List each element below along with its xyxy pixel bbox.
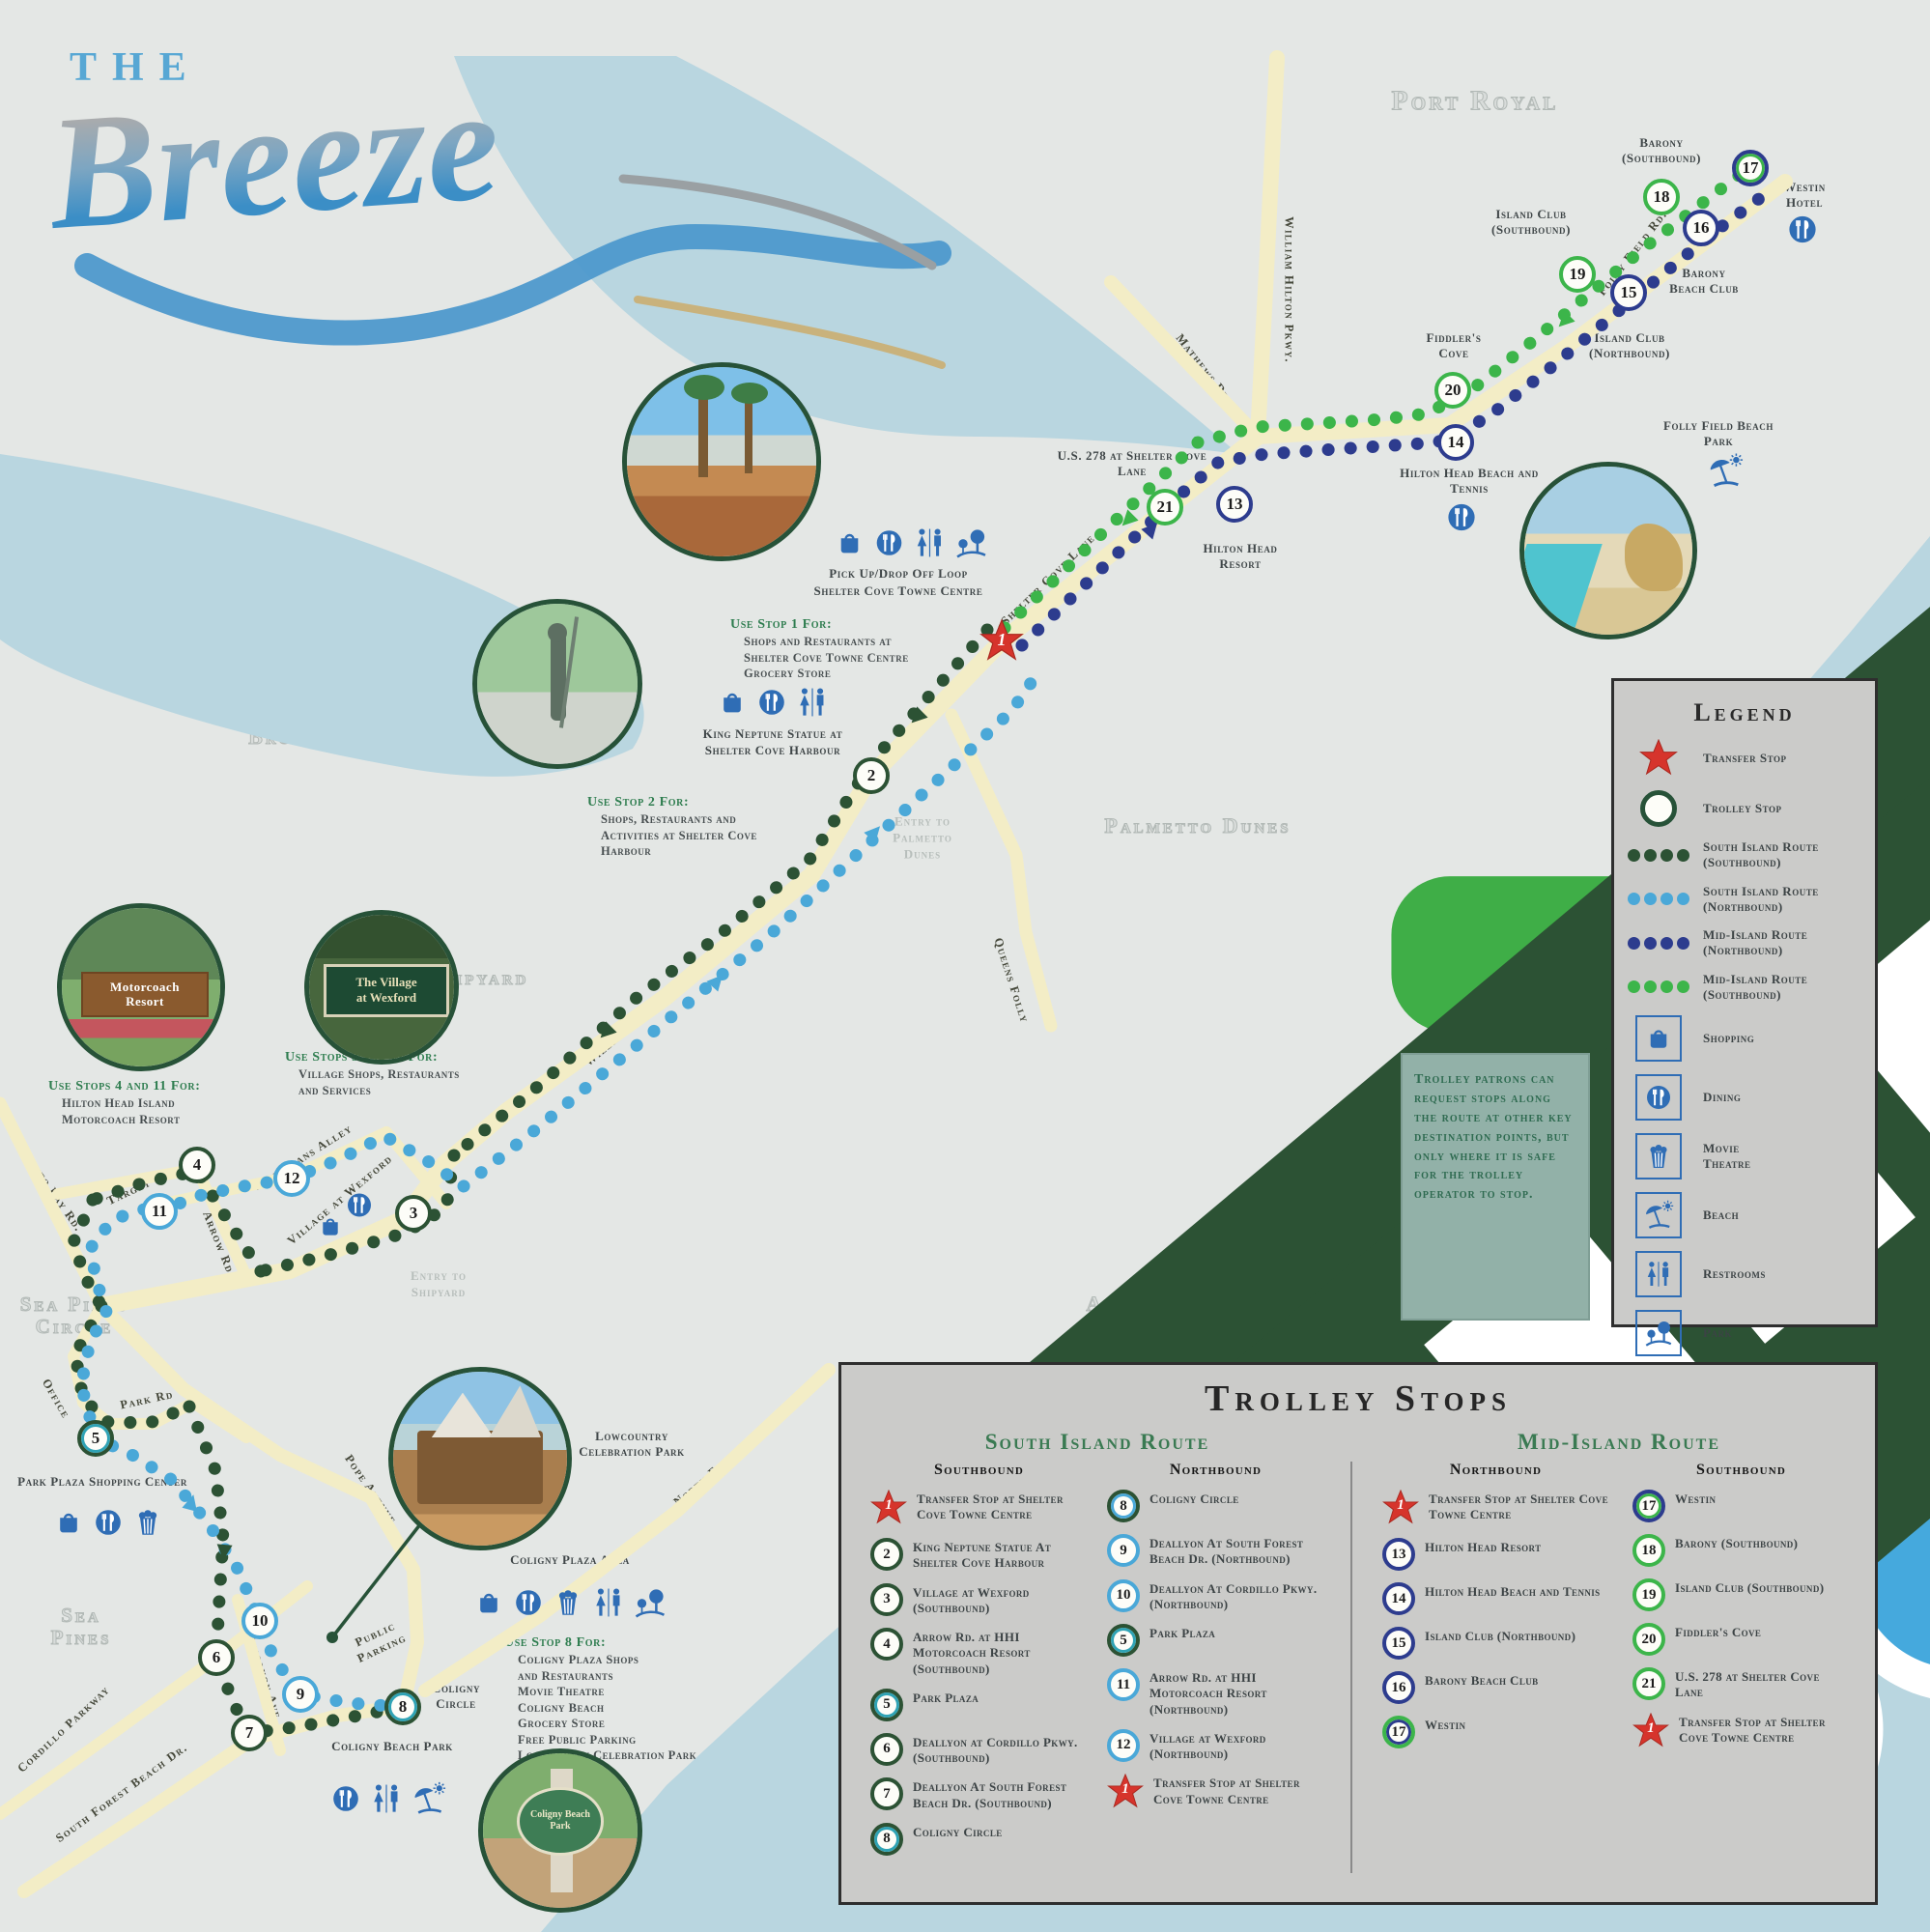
dining-icon — [874, 527, 905, 558]
dining-icon — [345, 1191, 374, 1225]
legend-beach: Beach — [1614, 1192, 1875, 1238]
stop-badge: 5 — [1107, 1624, 1140, 1657]
dining-icon — [330, 1783, 361, 1814]
legend-south-southbound: South Island Route (Southbound) — [1614, 839, 1875, 871]
map-stop-17: 17 — [1732, 150, 1769, 186]
map-stop-18: 18 — [1643, 179, 1680, 215]
table-divider — [1350, 1462, 1352, 1873]
map-stop-15: 15 — [1610, 274, 1647, 311]
transfer-star-icon: 1 — [1382, 1490, 1419, 1526]
mid-northbound-column: Northbound 1Transfer Stop at Shelter Cov… — [1382, 1463, 1609, 1761]
map-stop-21: 21 — [1147, 489, 1183, 526]
table-row: 19Island Club (Southbound) — [1632, 1578, 1850, 1611]
table-row: 13Hilton Head Resort — [1382, 1538, 1609, 1571]
stop-badge: 20 — [1632, 1623, 1665, 1656]
legend-mid-southbound: Mid-Island Route (Southbound) — [1614, 972, 1875, 1004]
dining-icon — [756, 687, 787, 718]
south-northbound-dots-icon — [1628, 893, 1689, 905]
map-stop-16: 16 — [1683, 210, 1719, 246]
village-at-wexford-sign-photo: The Village at Wexford — [304, 910, 459, 1065]
dining-icon — [1786, 213, 1819, 251]
table-row: 2King Neptune Statue At Shelter Cove Har… — [870, 1538, 1088, 1572]
legend-title: Legend — [1614, 700, 1875, 725]
table-row: 17Westin — [1382, 1716, 1609, 1748]
map-stop-13: 13 — [1216, 486, 1253, 523]
table-title: Trolley Stops — [841, 1380, 1875, 1417]
stop-badge: 10 — [1107, 1579, 1140, 1612]
mid-northbound-dots-icon — [1628, 937, 1689, 950]
mid-island-route-section: Mid-Island Route Northbound 1Transfer St… — [1382, 1431, 1856, 1761]
lowcountry-playground-photo — [388, 1367, 572, 1550]
title-breeze: Breeze — [43, 62, 504, 255]
legend-panel: Legend Transfer Stop Trolley Stop South … — [1611, 678, 1878, 1327]
stop-badge: 3 — [870, 1583, 903, 1616]
shelter-cove-amenities — [835, 526, 988, 559]
south-northbound-column: Northbound 8Coligny Circle 9Deallyon At … — [1107, 1463, 1324, 1867]
restrooms-icon — [914, 526, 947, 559]
shopping-icon — [317, 1213, 344, 1245]
breeze-trolley-map: THE Breeze Port Royal Broad Creek Broad … — [0, 0, 1930, 1932]
legend-south-northbound: South Island Route (Northbound) — [1614, 884, 1875, 916]
table-row: 1Transfer Stop at Shelter Cove Towne Cen… — [870, 1490, 1088, 1526]
table-row: 8Coligny Circle — [870, 1823, 1088, 1856]
beach-icon — [412, 1781, 446, 1816]
table-row: 21U.S. 278 at Shelter Cove Lane — [1632, 1667, 1850, 1701]
table-row: 12Village at Wexford (Northbound) — [1107, 1729, 1324, 1763]
stop-badge: 13 — [1382, 1538, 1415, 1571]
table-row: 10Deallyon At Cordillo Pkwy. (Northbound… — [1107, 1579, 1324, 1613]
stop-badge: 7 — [870, 1777, 903, 1810]
stop-badge: 6 — [870, 1733, 903, 1766]
legend-park: Park — [1614, 1310, 1875, 1356]
movie-icon — [132, 1507, 163, 1538]
dining-icon — [93, 1507, 124, 1538]
shopping-icon — [1644, 1024, 1673, 1053]
south-southbound-dots-icon — [1628, 849, 1689, 862]
south-southbound-column: Southbound 1Transfer Stop at Shelter Cov… — [870, 1463, 1088, 1867]
legend-transfer-stop: Transfer Stop — [1614, 739, 1875, 778]
table-row: 7Deallyon At South Forest Beach Dr. (Sou… — [870, 1777, 1088, 1811]
trolley-stop-icon — [1640, 790, 1677, 827]
map-stop-7: 7 — [231, 1715, 268, 1751]
table-row: 1Transfer Stop at Shelter Cove Towne Cen… — [1382, 1490, 1609, 1526]
shelter-cove-towne-centre-photo — [622, 362, 821, 561]
table-row: 5Park Plaza — [870, 1689, 1088, 1721]
map-stop-3: 3 — [395, 1195, 432, 1232]
transfer-star-icon: 1 — [1107, 1774, 1144, 1810]
dining-icon — [1445, 501, 1478, 539]
map-stop-5: 5 — [77, 1420, 114, 1457]
stop-badge: 17 — [1632, 1490, 1665, 1522]
table-row: 5Park Plaza — [1107, 1624, 1324, 1657]
south-island-route-section: South Island Route Southbound 1Transfer … — [870, 1431, 1324, 1867]
stop-badge: 4 — [870, 1628, 903, 1661]
dining-icon — [513, 1587, 544, 1618]
map-stop-14: 14 — [1437, 424, 1474, 461]
dining-icon — [1644, 1083, 1673, 1112]
map-stop-20: 20 — [1434, 372, 1471, 409]
map-stop-4: 4 — [179, 1147, 215, 1183]
legend-shopping: Shopping — [1614, 1015, 1875, 1062]
table-row: 16Barony Beach Club — [1382, 1671, 1609, 1704]
park-icon — [955, 526, 988, 559]
transfer-star-icon: 1 — [1632, 1713, 1669, 1749]
legend-trolley-stop: Trolley Stop — [1614, 790, 1875, 827]
legend-movie-theatre: Movie Theatre — [1614, 1133, 1875, 1179]
stop-badge: 16 — [1382, 1671, 1415, 1704]
shopping-icon — [717, 687, 748, 718]
park-icon — [634, 1586, 667, 1619]
trolley-request-note: Trolley patrons can request stops along … — [1401, 1053, 1590, 1321]
map-stop-12: 12 — [273, 1160, 310, 1197]
stop-badge: 5 — [870, 1689, 903, 1721]
map-stop-11: 11 — [141, 1193, 178, 1230]
trolley-stops-table: Trolley Stops South Island Route Southbo… — [838, 1362, 1878, 1905]
beach-icon — [1707, 453, 1744, 495]
movie-icon — [1644, 1142, 1673, 1171]
map-stop-2: 2 — [853, 757, 890, 794]
table-row: 4Arrow Rd. at HHI Motorcoach Resort (Sou… — [870, 1628, 1088, 1677]
stop-badge: 14 — [1382, 1582, 1415, 1615]
table-row: 9Deallyon At South Forest Beach Dr. (Nor… — [1107, 1534, 1324, 1568]
motorcoach-resort-sign-photo: Motorcoach Resort — [57, 903, 225, 1071]
shopping-icon — [53, 1507, 84, 1538]
table-row: 15Island Club (Northbound) — [1382, 1627, 1609, 1660]
legend-dining: Dining — [1614, 1074, 1875, 1121]
coligny-beach-amenities — [330, 1781, 446, 1816]
stop-badge: 9 — [1107, 1534, 1140, 1567]
table-row: 8Coligny Circle — [1107, 1490, 1324, 1522]
map-stop-19: 19 — [1559, 256, 1596, 293]
park-icon — [1644, 1319, 1673, 1348]
mid-southbound-column: Southbound 17Westin 18Barony (Southbound… — [1632, 1463, 1850, 1761]
table-row: 20Fiddler's Cove — [1632, 1623, 1850, 1656]
legend-mid-northbound: Mid-Island Route (Northbound) — [1614, 927, 1875, 959]
stop-badge: 18 — [1632, 1534, 1665, 1567]
coligny-plaza-amenities — [473, 1586, 667, 1619]
stop-badge: 2 — [870, 1538, 903, 1571]
king-neptune-statue-photo — [472, 599, 642, 769]
stop-badge: 8 — [870, 1823, 903, 1856]
king-neptune-amenities — [717, 686, 829, 719]
stop-badge: 17 — [1382, 1716, 1415, 1748]
restrooms-icon — [370, 1782, 403, 1815]
shopping-icon — [473, 1587, 504, 1618]
movie-icon — [553, 1587, 583, 1618]
stop-badge: 15 — [1382, 1627, 1415, 1660]
shopping-icon — [835, 527, 866, 558]
transfer-star-icon: 1 — [870, 1490, 907, 1526]
table-row: 11Arrow Rd. at HHI Motorcoach Resort (No… — [1107, 1668, 1324, 1718]
beach-icon — [1643, 1200, 1674, 1231]
table-row: 1Transfer Stop at Shelter Cove Towne Cen… — [1632, 1713, 1850, 1749]
table-row: 17Westin — [1632, 1490, 1850, 1522]
stop-badge: 21 — [1632, 1667, 1665, 1700]
stop-badge: 8 — [1107, 1490, 1140, 1522]
transfer-stop-1-map: 1 — [979, 619, 1024, 664]
mid-southbound-dots-icon — [1628, 980, 1689, 993]
stop-badge: 19 — [1632, 1578, 1665, 1611]
table-row: 3Village at Wexford (Southbound) — [870, 1583, 1088, 1617]
table-row: 6Deallyon at Cordillo Pkwy. (Southbound) — [870, 1733, 1088, 1767]
stop-badge: 12 — [1107, 1729, 1140, 1762]
restrooms-icon — [1644, 1260, 1673, 1289]
coligny-beach-park-sign-photo: Coligny Beach Park — [478, 1748, 642, 1913]
table-row: 14Hilton Head Beach and Tennis — [1382, 1582, 1609, 1615]
table-row: 1Transfer Stop at Shelter Cove Towne Cen… — [1107, 1774, 1324, 1810]
legend-restrooms: Restrooms — [1614, 1251, 1875, 1297]
transfer-star-icon — [1639, 739, 1678, 778]
map-stop-10: 10 — [241, 1603, 278, 1639]
restrooms-icon — [592, 1586, 625, 1619]
map-stop-9: 9 — [282, 1676, 319, 1713]
folly-field-beach-photo — [1519, 462, 1697, 639]
map-stop-6: 6 — [198, 1639, 235, 1676]
stop-badge: 11 — [1107, 1668, 1140, 1701]
restrooms-icon — [796, 686, 829, 719]
park-plaza-amenities — [53, 1507, 163, 1538]
lowcountry-leader-line — [326, 1524, 420, 1643]
map-stop-8: 8 — [384, 1689, 421, 1725]
table-row: 18Barony (Southbound) — [1632, 1534, 1850, 1567]
